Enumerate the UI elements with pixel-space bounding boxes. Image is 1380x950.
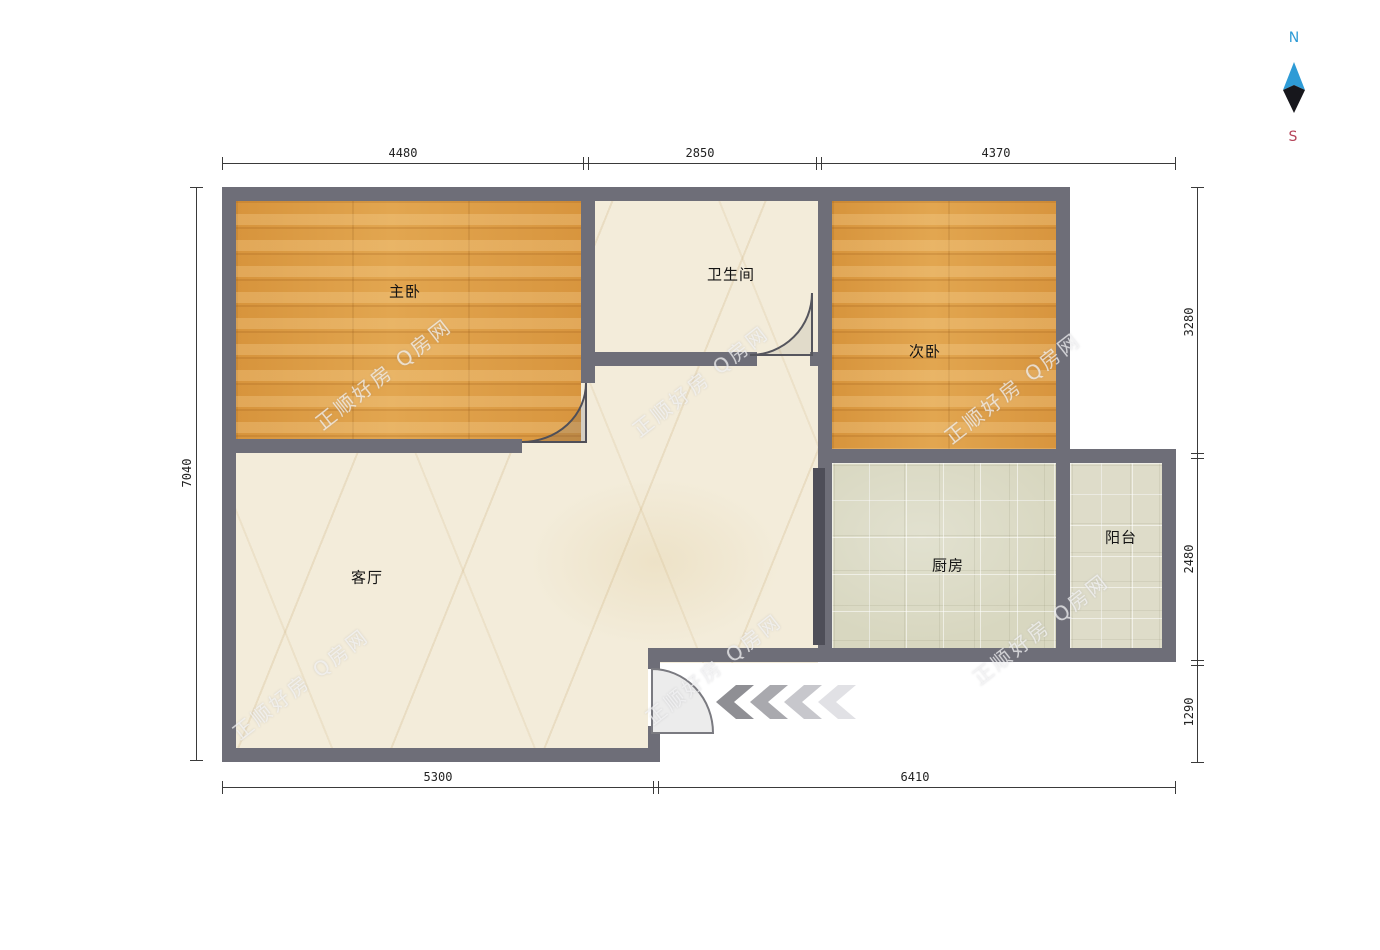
dim-tick bbox=[658, 781, 659, 794]
dim-tick bbox=[816, 157, 817, 170]
room-label-kitchen: 厨房 bbox=[932, 555, 964, 576]
dim-line-top bbox=[222, 163, 1175, 164]
dim-tick bbox=[1191, 762, 1204, 763]
room-label-bathroom: 卫生间 bbox=[707, 264, 755, 285]
dim-tick bbox=[190, 187, 203, 188]
dim-top-1: 4480 bbox=[389, 146, 418, 160]
wall-master-bottom bbox=[222, 439, 522, 453]
dim-line-right bbox=[1197, 187, 1198, 762]
dim-right-3: 1290 bbox=[1182, 698, 1196, 727]
dim-tick bbox=[653, 781, 654, 794]
wall-top bbox=[222, 187, 1070, 201]
dim-tick bbox=[222, 157, 223, 170]
wall-bottom-left bbox=[222, 748, 658, 762]
dim-tick bbox=[583, 157, 584, 170]
master-bedroom-floor bbox=[236, 201, 581, 442]
dim-line-left bbox=[196, 187, 197, 760]
dim-bottom-1: 5300 bbox=[424, 770, 453, 784]
wall-left bbox=[222, 187, 236, 762]
wall-entry-jamb bbox=[648, 726, 660, 762]
dim-tick bbox=[222, 781, 223, 794]
dim-left-1: 7040 bbox=[180, 459, 194, 488]
dim-top-2: 2850 bbox=[686, 146, 715, 160]
dim-right-1: 3280 bbox=[1182, 308, 1196, 337]
room-label-master-bedroom: 主卧 bbox=[389, 281, 421, 302]
dim-tick bbox=[1175, 157, 1176, 170]
room-label-second-bedroom: 次卧 bbox=[909, 341, 941, 362]
dim-top-3: 4370 bbox=[982, 146, 1011, 160]
wall-balcony-right bbox=[1162, 449, 1176, 662]
room-label-balcony: 阳台 bbox=[1105, 527, 1137, 548]
compass-north-label: N bbox=[1289, 30, 1299, 46]
room-label-living-room: 客厅 bbox=[351, 567, 383, 588]
dim-tick bbox=[1191, 458, 1204, 459]
dim-tick bbox=[1191, 660, 1204, 661]
floor-plan-canvas: 正顺好房 Q房网 正顺好房 Q房网 正顺好房 Q房网 正顺好房 Q房网 正顺好房… bbox=[0, 0, 1380, 950]
dim-right-2: 2480 bbox=[1182, 545, 1196, 574]
wall-bottom-right bbox=[648, 648, 1176, 662]
wall-entry-stub bbox=[648, 661, 660, 669]
dim-tick bbox=[1191, 453, 1204, 454]
wall-kitchen-balcony-top bbox=[818, 449, 1176, 463]
dim-tick bbox=[190, 760, 203, 761]
compass-south-label: S bbox=[1289, 129, 1298, 145]
dim-bottom-2: 6410 bbox=[901, 770, 930, 784]
entrance-arrow-icon bbox=[816, 685, 856, 719]
wall-right-column bbox=[1056, 187, 1070, 662]
kitchen-sliding-door bbox=[813, 468, 825, 645]
wall-bathroom-bottom bbox=[581, 352, 757, 366]
dim-tick bbox=[1191, 665, 1204, 666]
balcony-floor bbox=[1070, 463, 1162, 648]
dim-tick bbox=[1175, 781, 1176, 794]
dim-tick bbox=[1191, 187, 1204, 188]
dim-tick bbox=[588, 157, 589, 170]
dim-line-bottom bbox=[222, 787, 1175, 788]
dim-tick bbox=[821, 157, 822, 170]
second-bedroom-floor bbox=[832, 201, 1056, 449]
